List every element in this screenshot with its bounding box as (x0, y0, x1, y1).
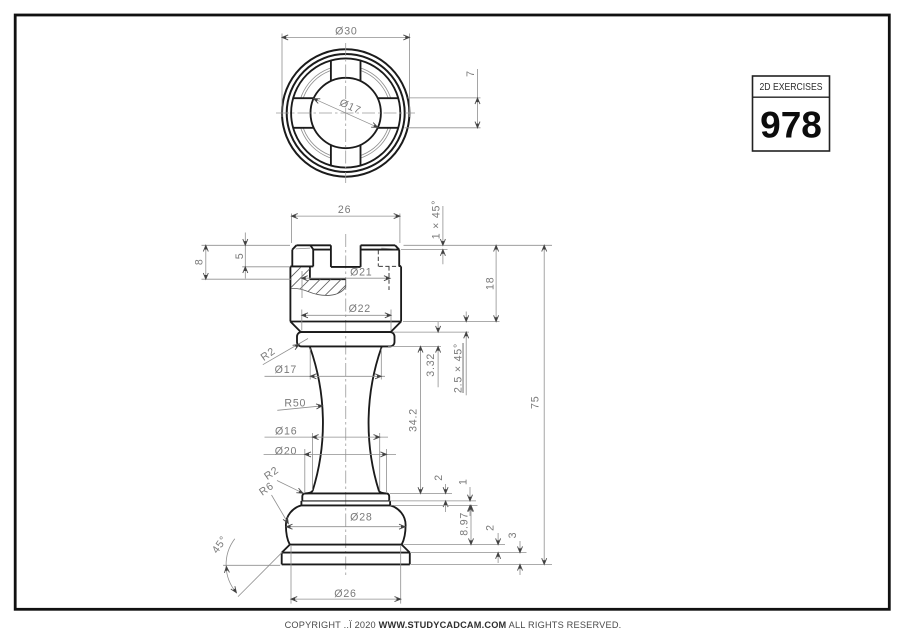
svg-text:2: 2 (433, 474, 445, 481)
svg-text:2.5 × 45°: 2.5 × 45° (453, 343, 465, 393)
svg-text:2D EXERCISES: 2D EXERCISES (760, 82, 823, 93)
svg-text:8.97: 8.97 (459, 512, 471, 536)
svg-text:1: 1 (457, 478, 469, 485)
svg-text:R50: R50 (284, 397, 306, 409)
svg-text:26: 26 (338, 204, 351, 216)
svg-text:Ø22: Ø22 (349, 303, 371, 315)
svg-text:Ø17: Ø17 (275, 364, 297, 376)
svg-text:18: 18 (485, 277, 497, 290)
svg-text:Ø16: Ø16 (275, 425, 297, 437)
svg-text:Ø28: Ø28 (350, 512, 372, 524)
svg-text:2: 2 (485, 524, 497, 531)
svg-text:34.2: 34.2 (408, 408, 420, 432)
svg-text:Ø30: Ø30 (335, 26, 357, 38)
svg-text:1 × 45°: 1 × 45° (430, 200, 442, 240)
svg-text:8: 8 (193, 258, 205, 265)
svg-text:75: 75 (529, 396, 541, 409)
svg-text:COPYRIGHT ..Ï 2020 WWW.STUDYCA: COPYRIGHT ..Ï 2020 WWW.STUDYCADCAM.COM A… (285, 620, 622, 630)
svg-text:3: 3 (507, 532, 519, 539)
svg-text:Ø26: Ø26 (334, 588, 356, 600)
svg-text:3.32: 3.32 (425, 353, 437, 377)
svg-text:Ø20: Ø20 (275, 445, 297, 457)
svg-text:978: 978 (760, 105, 822, 146)
svg-text:Ø21: Ø21 (350, 266, 372, 278)
svg-text:7: 7 (465, 70, 477, 77)
svg-text:5: 5 (234, 253, 246, 260)
